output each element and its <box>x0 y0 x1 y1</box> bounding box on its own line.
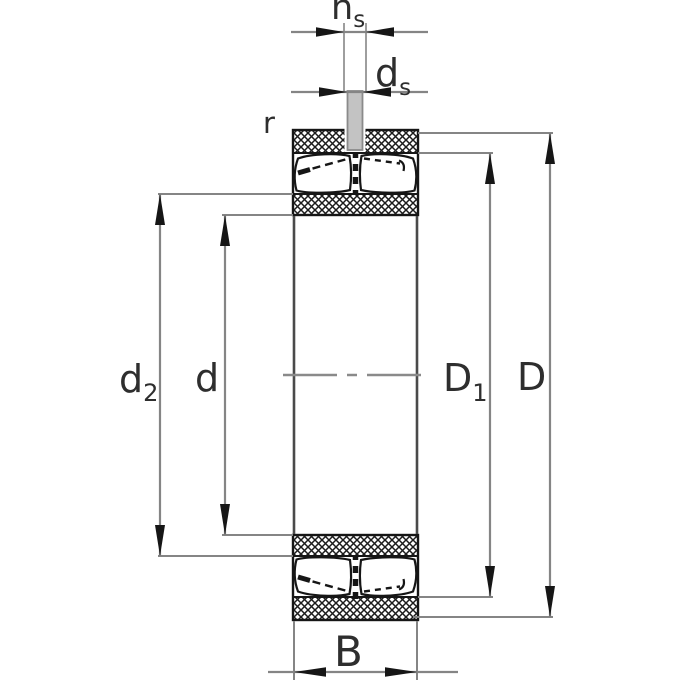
bearing-drawing-canvas: ns ds r d2 d D1 D B <box>0 0 680 680</box>
D1-arrow-bottom <box>485 566 495 597</box>
dimension-d <box>220 215 293 535</box>
D-arrow-top <box>545 133 555 164</box>
label-D: D <box>517 355 546 399</box>
lubrication-hole <box>348 91 363 150</box>
label-d: d <box>195 356 219 400</box>
label-ns: ns <box>331 0 365 33</box>
dimension-B <box>268 621 458 680</box>
d-arrow-top <box>220 215 230 246</box>
ns-arrow-left <box>316 27 344 37</box>
B-arrow-left <box>294 667 326 677</box>
label-r: r <box>263 106 275 140</box>
bearing-bottom-section <box>293 535 418 620</box>
label-B: B <box>334 627 363 676</box>
D1-arrow-top <box>485 153 495 184</box>
label-d2: d2 <box>119 357 158 407</box>
bearing-dimension-drawing: ns ds r d2 d D1 D B <box>0 0 680 680</box>
ns-arrow-right <box>366 27 394 37</box>
label-ds: ds <box>375 51 411 101</box>
D-arrow-bottom <box>545 586 555 617</box>
label-D1: D1 <box>443 356 488 407</box>
ds-arrow-left <box>319 87 347 97</box>
inner-ring-hatch <box>293 194 418 215</box>
B-arrow-right <box>385 667 417 677</box>
d2-arrow-bottom <box>155 525 165 556</box>
d2-arrow-top <box>155 194 165 225</box>
d-arrow-bottom <box>220 504 230 535</box>
